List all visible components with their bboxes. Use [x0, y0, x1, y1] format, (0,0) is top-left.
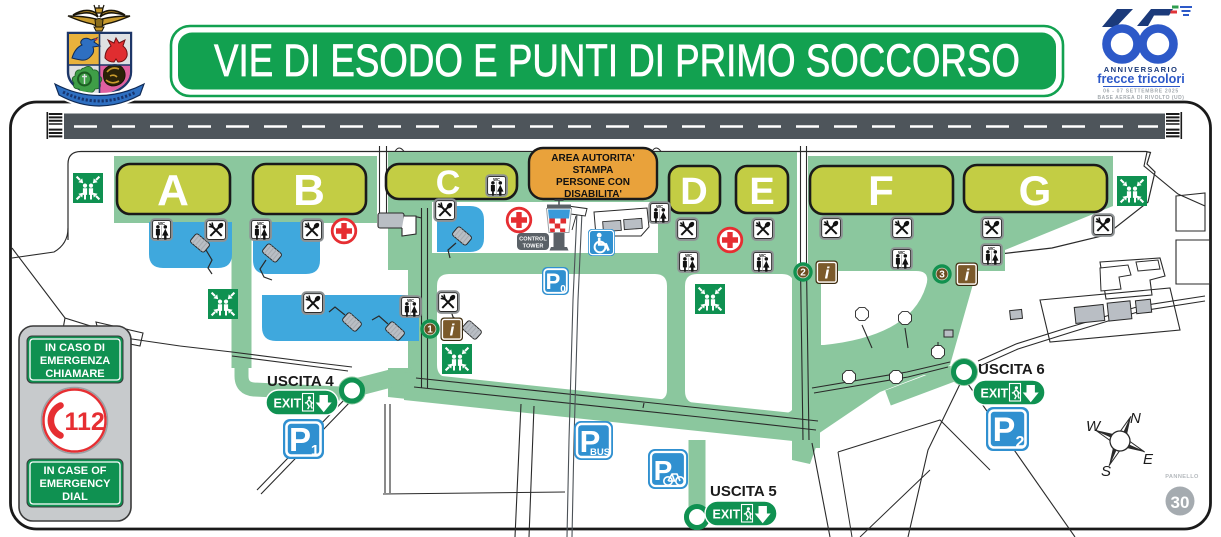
svg-text:EXIT: EXIT — [713, 508, 741, 522]
svg-text:DIAL: DIAL — [62, 491, 88, 503]
svg-text:3: 3 — [939, 270, 945, 281]
svg-text:B: B — [293, 166, 325, 215]
svg-text:E: E — [749, 171, 774, 213]
svg-text:frecce tricolori: frecce tricolori — [1097, 72, 1185, 86]
svg-text:IN CASO DI: IN CASO DI — [45, 342, 105, 354]
svg-text:06 - 07 SETTEMBRE 2025: 06 - 07 SETTEMBRE 2025 — [1103, 89, 1179, 95]
svg-text:PERSONE CON: PERSONE CON — [556, 177, 630, 188]
svg-text:DISABILITA': DISABILITA' — [564, 189, 622, 200]
svg-text:VIE DI ESODO E PUNTI DI PRIMO: VIE DI ESODO E PUNTI DI PRIMO SOCCORSO — [214, 35, 1020, 86]
svg-text:AREA AUTORITA': AREA AUTORITA' — [551, 153, 635, 164]
svg-text:0: 0 — [560, 284, 566, 295]
svg-text:EMERGENZA: EMERGENZA — [40, 355, 110, 367]
svg-text:A: A — [157, 166, 189, 215]
svg-text:CONTROL: CONTROL — [519, 237, 547, 243]
svg-text:PANNELLO: PANNELLO — [1165, 474, 1199, 480]
svg-text:S: S — [1101, 463, 1111, 480]
svg-text:G: G — [1019, 167, 1052, 214]
svg-text:C: C — [436, 164, 461, 202]
svg-text:1: 1 — [311, 442, 319, 459]
svg-text:2: 2 — [1016, 434, 1025, 451]
svg-text:TOWER: TOWER — [523, 244, 544, 250]
svg-text:USCITA 6: USCITA 6 — [978, 361, 1045, 378]
svg-text:2: 2 — [800, 268, 806, 279]
svg-text:P: P — [993, 411, 1016, 449]
svg-text:STAMPA: STAMPA — [573, 165, 614, 176]
svg-text:1: 1 — [427, 325, 433, 336]
svg-text:30: 30 — [1171, 493, 1190, 512]
svg-text:EMERGENCY: EMERGENCY — [40, 478, 112, 490]
svg-text:P: P — [289, 421, 311, 458]
svg-text:USCITA 4: USCITA 4 — [267, 373, 334, 390]
svg-text:BASE AEREA DI RIVOLTO (UD): BASE AEREA DI RIVOLTO (UD) — [1098, 95, 1185, 101]
svg-text:E: E — [1143, 451, 1154, 468]
svg-text:USCITA 5: USCITA 5 — [710, 483, 777, 500]
svg-text:EXIT: EXIT — [274, 397, 302, 411]
svg-text:EXIT: EXIT — [981, 387, 1009, 401]
svg-text:N: N — [1130, 410, 1141, 427]
svg-text:D: D — [680, 171, 707, 213]
svg-text:F: F — [868, 167, 894, 214]
svg-text:IN CASE OF: IN CASE OF — [44, 465, 107, 477]
svg-text:CHIAMARE: CHIAMARE — [45, 368, 104, 380]
svg-text:112: 112 — [65, 408, 105, 436]
svg-text:W: W — [1086, 418, 1102, 435]
svg-text:BUS: BUS — [590, 447, 610, 458]
svg-text:P: P — [546, 269, 561, 294]
